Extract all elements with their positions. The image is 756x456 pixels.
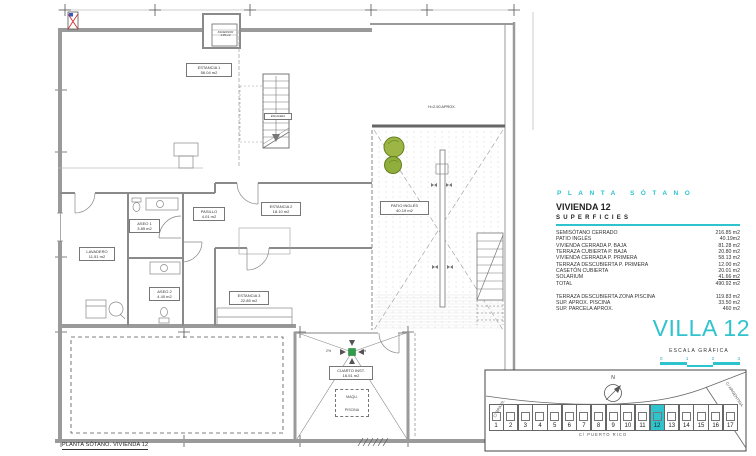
room-label-patio: PATIO INGLÉS 40.19 m2 — [380, 201, 429, 215]
siteplan-plot-16: 16 — [708, 404, 723, 431]
drain-icon — [349, 349, 356, 356]
siteplan-plot-15: 15 — [693, 404, 708, 431]
scale-tick: 2 — [712, 356, 715, 361]
pool-machinery-label: MAQU. PISCINA — [335, 389, 369, 417]
main-staircase — [240, 74, 289, 148]
scale-bar-segments — [660, 362, 740, 368]
siteplan-plot-10: 10 — [620, 404, 635, 431]
superficies-title: SUPERFICIES — [556, 215, 631, 221]
siteplan-plot-2: 2 — [503, 404, 518, 431]
drawing-caption: PLANTA SÓTANO. VIVIENDA 12 — [62, 442, 148, 450]
siteplan-plot-12: 12 — [650, 404, 665, 431]
house-icon — [653, 412, 662, 421]
house-icon — [565, 412, 574, 421]
house-icon — [550, 412, 559, 421]
vivienda-title: VIVIENDA 12 — [556, 202, 611, 212]
house-icon — [726, 412, 735, 421]
tree-icon — [384, 137, 404, 174]
siteplan-plot-17: 17 — [723, 404, 738, 431]
superficies-extra-table: TERRAZA DESCUBIERTA ZONA PISCINA119.83 m… — [556, 295, 740, 313]
house-icon — [579, 412, 588, 421]
room-label-estancia1: ESTANCIA 1 56.04 m2 — [186, 63, 232, 77]
house-icon — [535, 412, 544, 421]
room-label-aseo2: ASEO 2 4.40 m2 — [149, 287, 180, 301]
height-note: H=2.50 APROX. — [418, 104, 466, 111]
pool-outline — [71, 337, 283, 433]
graphic-scale-bar: 0123 — [660, 356, 740, 368]
superficies-table: SEMISÓTANO CERRADO216.85 m2PATIO INGLÉS4… — [556, 230, 740, 287]
siteplan-plot-row: 1234567891011121314151617 — [489, 404, 738, 431]
house-icon — [594, 412, 603, 421]
scale-tick: 3 — [737, 356, 740, 361]
siteplan-plot-9: 9 — [606, 404, 621, 431]
room-label-aseo1: ASEO 1 3.85 m2 — [129, 219, 160, 233]
siteplan-plot-5: 5 — [547, 404, 562, 431]
house-icon — [623, 412, 632, 421]
house-icon — [609, 412, 618, 421]
siteplan-plot-14: 14 — [679, 404, 694, 431]
room-label-stairs: ESCALERA — [264, 113, 292, 120]
house-icon — [682, 412, 691, 421]
room-label-cuarto-inst: CUARTO INST. 16.51 m2 — [329, 366, 373, 380]
siteplan-plot-4: 4 — [532, 404, 547, 431]
room-label-estancia3: ESTANCIA 3 22.85 m2 — [229, 291, 269, 305]
house-icon — [521, 412, 530, 421]
house-icon — [506, 412, 515, 421]
superficie-row: TOTAL490.92 m2 — [556, 281, 740, 287]
scale-ticks: 0123 — [660, 356, 740, 361]
siteplan-plot-3: 3 — [518, 404, 533, 431]
scale-tick: 0 — [660, 356, 663, 361]
north-arrow — [605, 385, 622, 402]
patio-elements — [431, 150, 503, 325]
slope-label-left: 2% — [326, 349, 331, 353]
house-icon — [638, 412, 647, 421]
siteplan-plot-8: 8 — [591, 404, 606, 431]
slope-label-right: 2% — [361, 349, 366, 353]
siteplan-plot-6: 6 — [562, 404, 577, 431]
house-icon — [667, 412, 676, 421]
room-label-elevator: ASCENSOR 1.05 m2 — [211, 30, 240, 39]
blueprint-page: ESTANCIA 1 56.04 m2 ASCENSOR 1.05 m2 ESC… — [0, 0, 756, 456]
column-markers — [55, 4, 520, 447]
floorplan-drawing — [0, 0, 756, 456]
room-label-estancia2: ESTANCIA 2 18.10 m2 — [261, 202, 301, 216]
window — [57, 213, 63, 241]
room-label-pasillo: PASILLO 4.01 m2 — [193, 207, 225, 221]
superficie-row: SUP. PARCELA APROX.460 m2 — [556, 307, 740, 313]
siteplan-plot-11: 11 — [635, 404, 650, 431]
patio-staircase — [477, 233, 503, 325]
utility-meter-icon — [68, 12, 78, 29]
siteplan-plot-13: 13 — [664, 404, 679, 431]
scale-tick: 1 — [686, 356, 689, 361]
plan-title: PLANTA SÓTANO — [557, 190, 696, 197]
house-icon — [711, 412, 720, 421]
siteplan-plot-7: 7 — [576, 404, 591, 431]
north-label: N — [608, 375, 618, 381]
accent-rule — [556, 224, 740, 226]
house-icon — [697, 412, 706, 421]
villa-title: VILLA 12 — [598, 315, 750, 342]
scale-label: ESCALA GRÁFICA — [656, 348, 742, 354]
street-label-puerto-rico: C/ PUERTO RICO — [548, 432, 658, 437]
room-label-lavadero: LAVADERO 11.51 m2 — [79, 247, 115, 261]
